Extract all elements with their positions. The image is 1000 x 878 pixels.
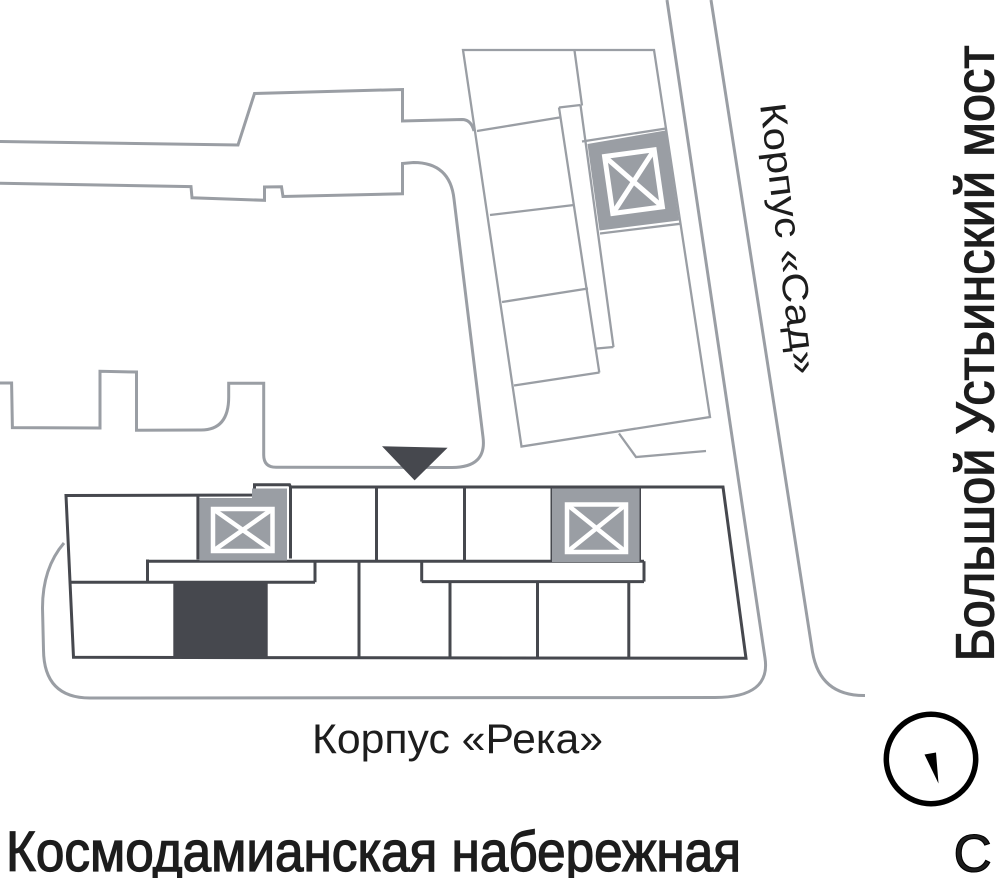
svg-text:С: С	[954, 825, 992, 878]
svg-text:Корпус «Река»: Корпус «Река»	[312, 715, 603, 762]
svg-text:Большой Устьинский мост: Большой Устьинский мост	[946, 46, 1000, 662]
svg-text:Космодамианская набережная: Космодамианская набережная	[6, 820, 741, 878]
